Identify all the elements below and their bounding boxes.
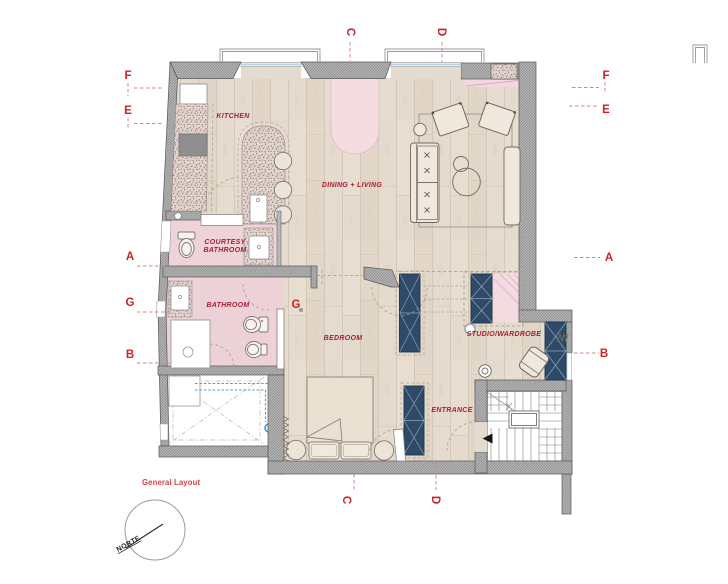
svg-text:B: B bbox=[126, 349, 134, 361]
svg-text:E: E bbox=[124, 105, 132, 117]
svg-text:C: C bbox=[344, 28, 356, 36]
svg-text:COURTESY: COURTESY bbox=[204, 239, 246, 246]
svg-text:DINING + LIVING: DINING + LIVING bbox=[322, 182, 383, 189]
svg-text:A: A bbox=[605, 252, 613, 264]
svg-text:F: F bbox=[124, 70, 131, 82]
svg-text:G: G bbox=[126, 297, 135, 309]
svg-text:KITCHEN: KITCHEN bbox=[216, 113, 250, 120]
svg-text:STUDIO/WARDROBE: STUDIO/WARDROBE bbox=[467, 331, 542, 338]
svg-text:C: C bbox=[340, 496, 352, 504]
svg-text:D: D bbox=[435, 28, 447, 36]
svg-text:B: B bbox=[600, 348, 608, 360]
svg-text:BEDROOM: BEDROOM bbox=[324, 335, 363, 342]
svg-text:D: D bbox=[429, 496, 441, 504]
svg-text:BATHROOM: BATHROOM bbox=[203, 247, 246, 254]
svg-text:BATHROOM: BATHROOM bbox=[206, 302, 249, 309]
svg-text:ENTRANCE: ENTRANCE bbox=[431, 407, 472, 414]
svg-text:F: F bbox=[602, 70, 609, 82]
svg-text:E: E bbox=[602, 104, 610, 116]
svg-text:A: A bbox=[126, 251, 134, 263]
svg-text:General Layout: General Layout bbox=[142, 478, 200, 487]
